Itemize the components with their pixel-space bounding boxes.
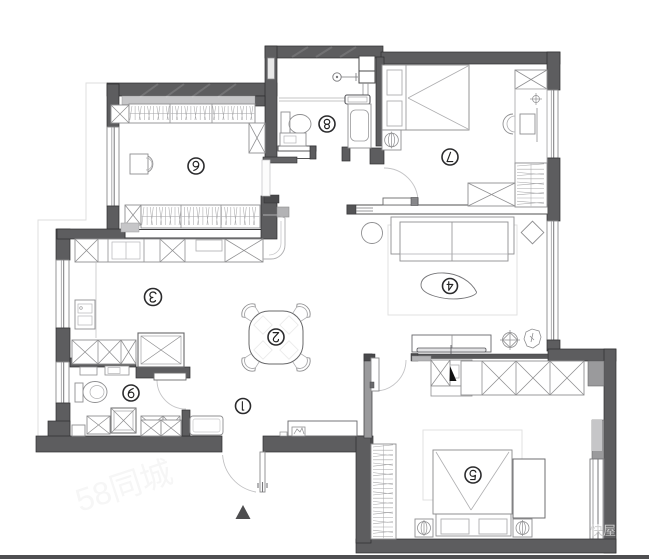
svg-text:快屋: 快屋 [590,523,616,538]
